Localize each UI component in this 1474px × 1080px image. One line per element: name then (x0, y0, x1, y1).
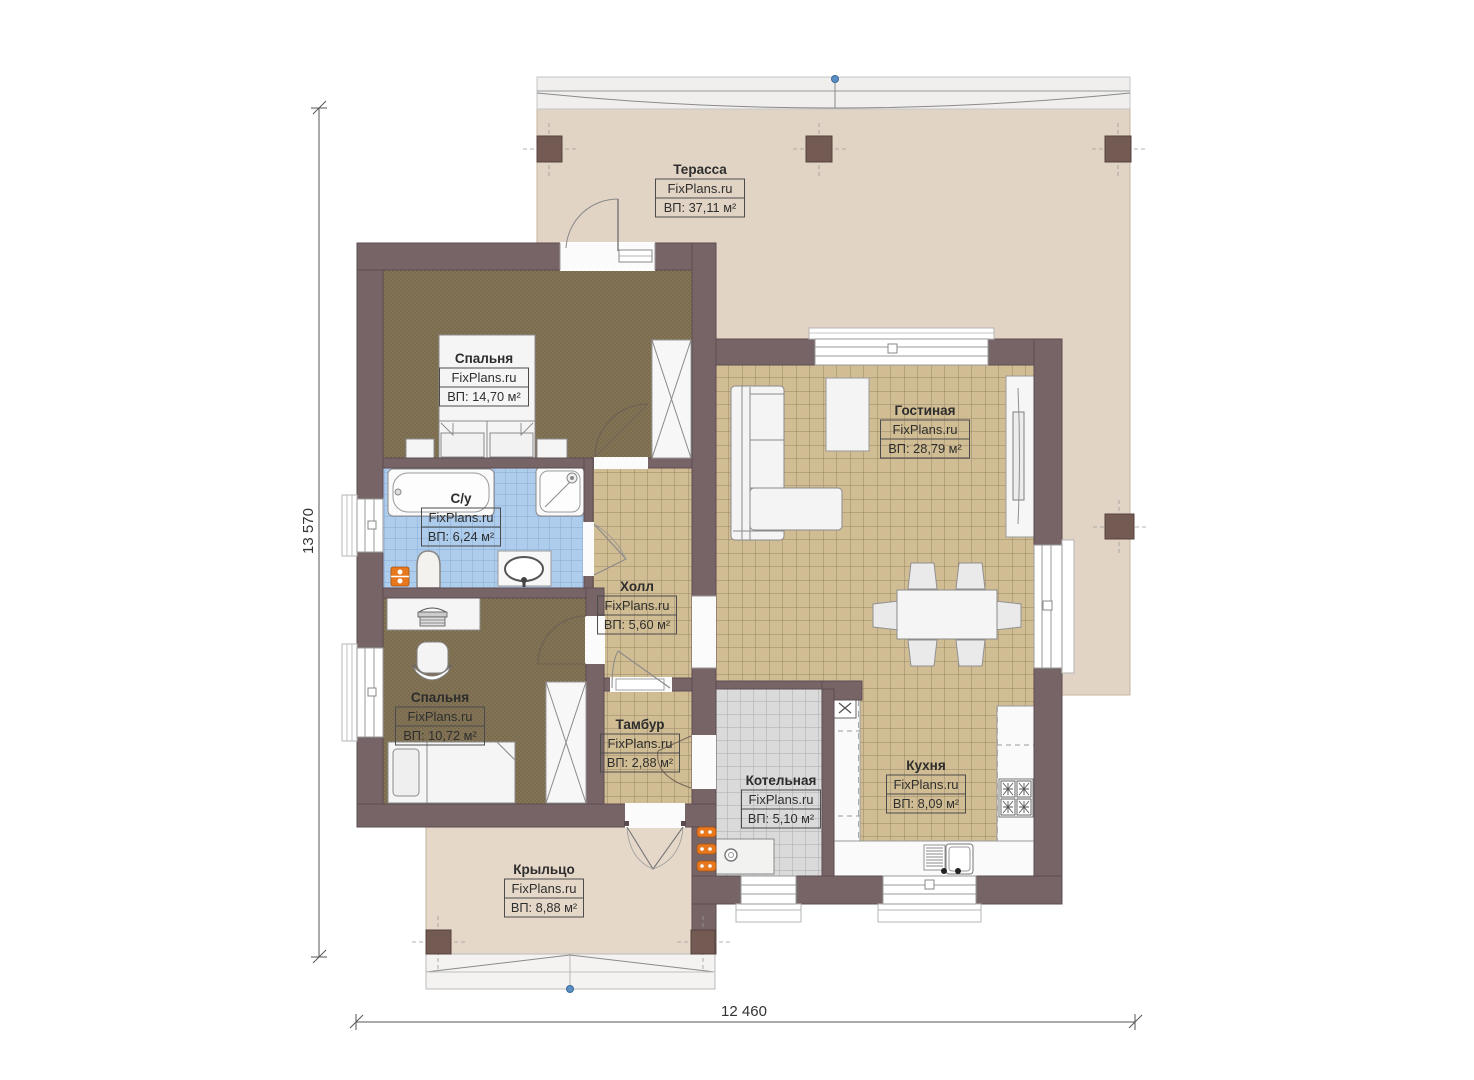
svg-text:ВП: 37,11 м²: ВП: 37,11 м² (664, 200, 737, 215)
svg-text:С/у: С/у (450, 491, 472, 506)
svg-text:FixPlans.ru: FixPlans.ru (748, 792, 813, 807)
svg-text:FixPlans.ru: FixPlans.ru (892, 422, 957, 437)
svg-text:Спальня: Спальня (455, 351, 513, 366)
svg-text:Тамбур: Тамбур (616, 717, 665, 732)
svg-text:ВП: 14,70 м²: ВП: 14,70 м² (447, 389, 521, 404)
svg-text:FixPlans.ru: FixPlans.ru (893, 777, 958, 792)
svg-text:Терасса: Терасса (673, 162, 727, 177)
svg-text:12 460: 12 460 (721, 1003, 767, 1020)
svg-text:FixPlans.ru: FixPlans.ru (607, 736, 672, 751)
svg-text:ВП: 8,88 м²: ВП: 8,88 м² (511, 900, 578, 915)
svg-text:Холл: Холл (620, 579, 654, 594)
svg-text:Котельная: Котельная (746, 773, 817, 788)
svg-text:Крыльцо: Крыльцо (513, 862, 574, 877)
svg-text:Спальня: Спальня (411, 690, 469, 705)
svg-text:Кухня: Кухня (906, 758, 945, 773)
svg-text:ВП: 28,79 м²: ВП: 28,79 м² (888, 441, 962, 456)
svg-text:FixPlans.ru: FixPlans.ru (667, 181, 732, 196)
svg-text:ВП: 10,72 м²: ВП: 10,72 м² (403, 728, 477, 743)
svg-text:ВП: 5,60 м²: ВП: 5,60 м² (604, 617, 671, 632)
svg-text:ВП: 5,10 м²: ВП: 5,10 м² (748, 811, 815, 826)
svg-text:FixPlans.ru: FixPlans.ru (451, 370, 516, 385)
svg-text:FixPlans.ru: FixPlans.ru (428, 510, 493, 525)
svg-text:Гостиная: Гостиная (894, 403, 955, 418)
svg-text:FixPlans.ru: FixPlans.ru (407, 709, 472, 724)
svg-text:ВП: 6,24 м²: ВП: 6,24 м² (428, 529, 495, 544)
svg-text:13 570: 13 570 (300, 508, 317, 554)
svg-text:ВП: 2,88 м²: ВП: 2,88 м² (607, 755, 674, 770)
svg-text:FixPlans.ru: FixPlans.ru (511, 881, 576, 896)
svg-text:ВП: 8,09 м²: ВП: 8,09 м² (893, 796, 960, 811)
svg-text:FixPlans.ru: FixPlans.ru (604, 598, 669, 613)
